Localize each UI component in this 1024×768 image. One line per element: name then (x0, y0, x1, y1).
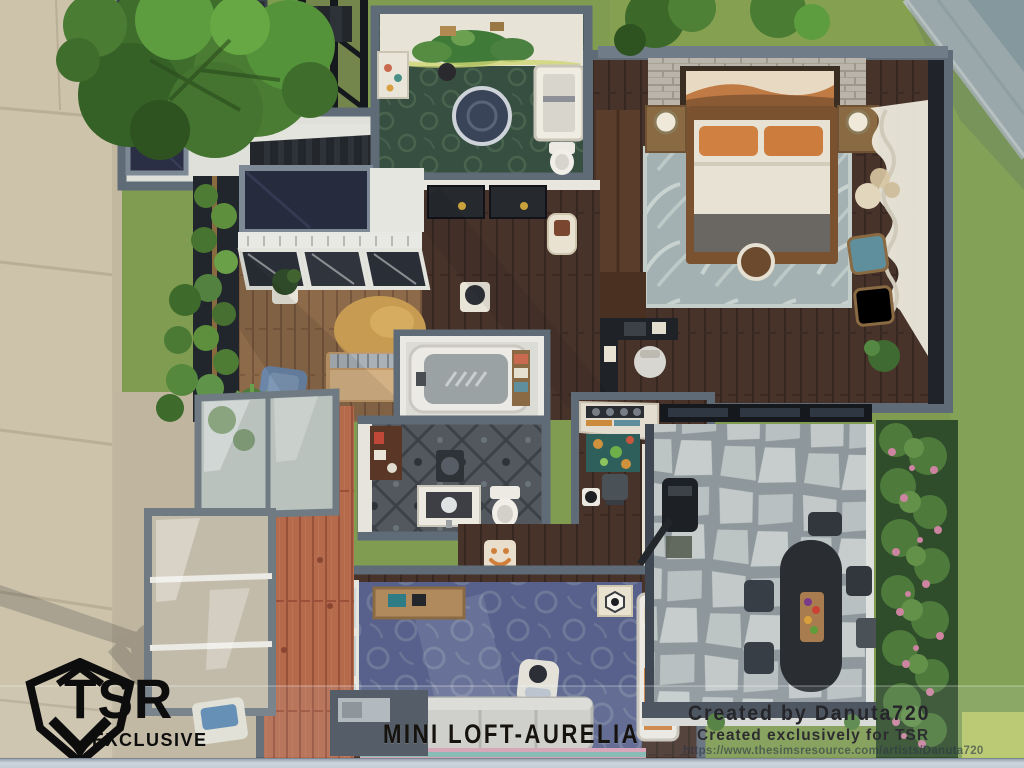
loft-void (242, 168, 370, 232)
nightstand-left (646, 106, 686, 152)
patio (640, 404, 882, 731)
bottom-bar (0, 758, 1024, 768)
play-mat (586, 434, 640, 472)
toilet (490, 486, 520, 528)
double-bed (686, 106, 838, 279)
stove (586, 406, 644, 426)
bedside-table (598, 586, 632, 616)
washing-machine (436, 450, 464, 482)
dining-chair (808, 512, 842, 536)
loft-wall (370, 168, 424, 232)
lounge (156, 168, 428, 422)
crib (535, 66, 583, 140)
bath-vanity-dark (370, 426, 402, 480)
tsr-logo: TSR EXCLUSIVE (20, 658, 220, 768)
tsr-logo-subtext: EXCLUSIVE (92, 730, 208, 751)
wardrobe (596, 110, 646, 332)
tsr-logo-text: TSR (64, 666, 173, 731)
kids-desk (374, 588, 464, 618)
laundry-hamper (548, 214, 576, 254)
master-bedroom (588, 55, 948, 408)
plan-title: MINI LOFT-AURELIA (383, 719, 640, 750)
window-band (928, 60, 944, 404)
teddy-toy (438, 63, 456, 81)
dining-chair (744, 642, 774, 674)
nightstand-right (838, 106, 878, 152)
bathtub (410, 346, 528, 412)
dining-chair (846, 566, 872, 596)
pet-bowl (582, 488, 600, 506)
sink-vanity (418, 486, 480, 528)
baby-mobile (378, 52, 408, 98)
serving-tray (800, 592, 824, 642)
pillow (699, 126, 758, 156)
nursery-round-rug (454, 88, 510, 144)
nursery (375, 10, 588, 177)
bathroom-main (358, 420, 546, 536)
ottoman (739, 245, 773, 279)
screenshot-root: TSR EXCLUSIVE MINI LOFT-AURELIA Created … (0, 0, 1024, 768)
bathroom-tub (398, 334, 546, 424)
glass-roof-upper (198, 392, 336, 516)
pillow (764, 126, 823, 156)
floorplan-scene (0, 0, 1024, 768)
nursery-toilet (549, 142, 575, 175)
exterior-wall-top (598, 46, 948, 58)
dining-chair (744, 580, 774, 612)
computer-monitor (624, 322, 646, 336)
